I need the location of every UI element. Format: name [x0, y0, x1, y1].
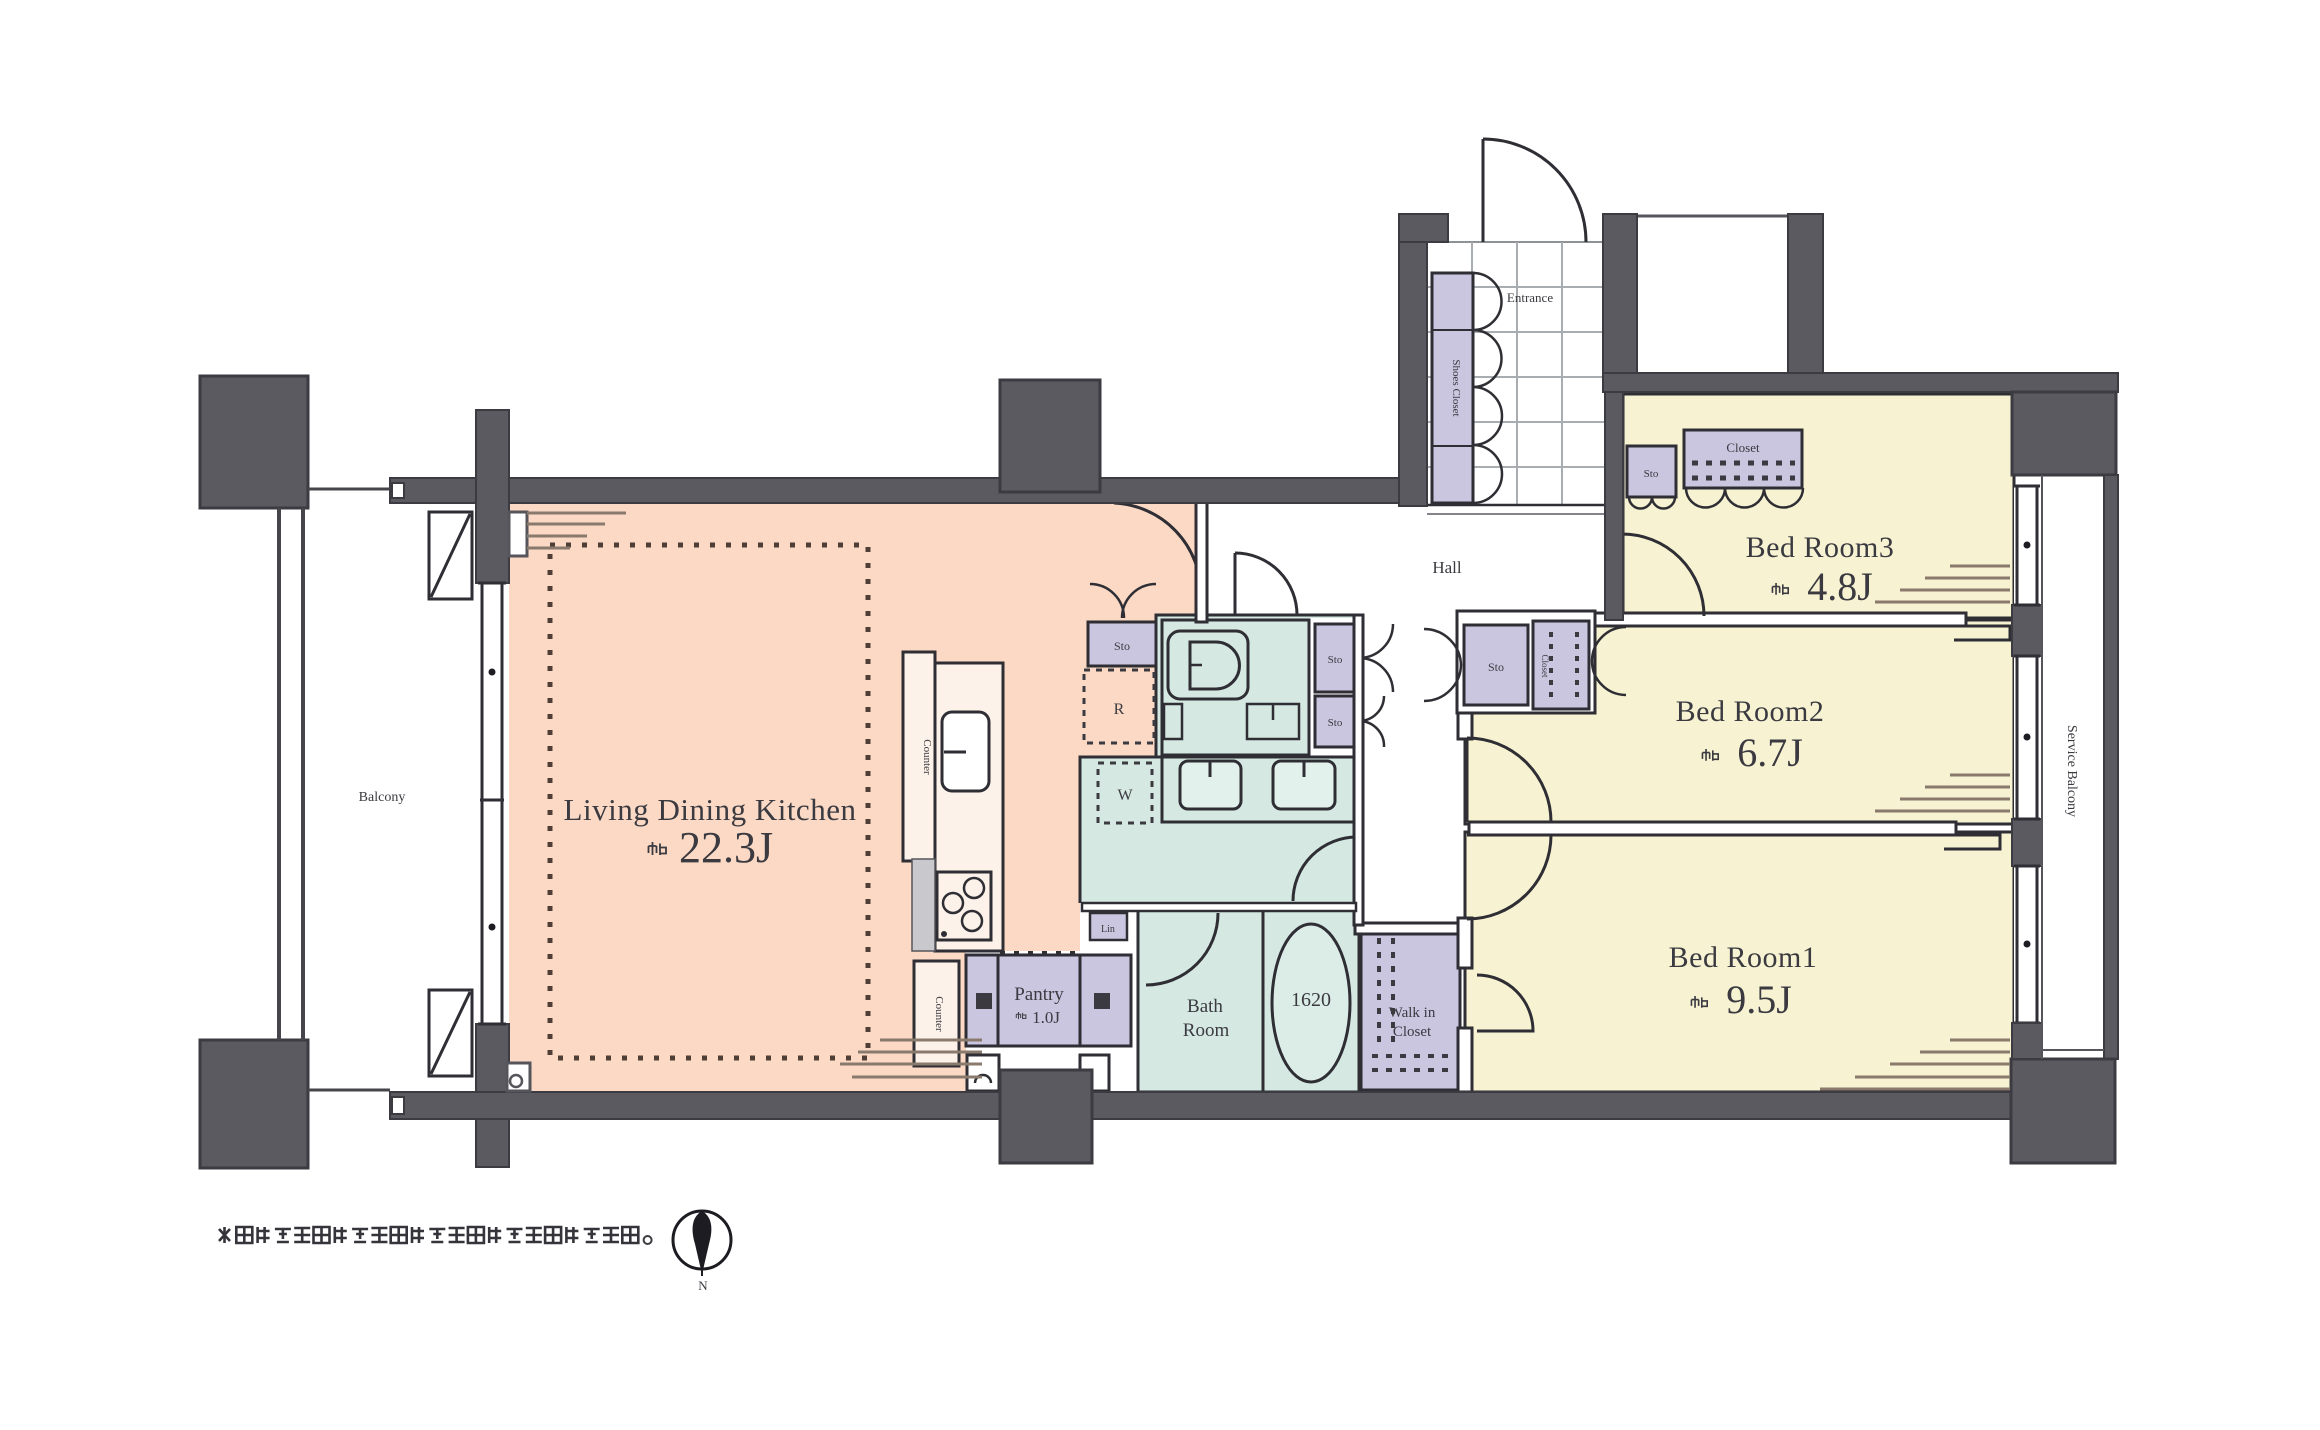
svg-text:Hall: Hall: [1432, 558, 1462, 577]
svg-text:N: N: [698, 1278, 708, 1293]
svg-text:Counter: Counter: [921, 739, 933, 775]
svg-text:Bath: Bath: [1187, 996, 1223, 1017]
svg-text:Bed Room3: Bed Room3: [1746, 531, 1895, 564]
svg-text:Service Balcony: Service Balcony: [2064, 725, 2079, 817]
svg-text:Bed Room1: Bed Room1: [1669, 941, 1818, 974]
svg-text:Bed Room2: Bed Room2: [1676, 695, 1825, 728]
svg-text:9.5J: 9.5J: [1726, 977, 1792, 1022]
svg-text:Counter: Counter: [933, 996, 945, 1032]
svg-text:Balcony: Balcony: [359, 790, 406, 805]
svg-text:Pantry: Pantry: [1014, 984, 1064, 1005]
svg-text:W: W: [1117, 787, 1133, 804]
svg-text:Sto: Sto: [1488, 660, 1504, 674]
svg-text:1620: 1620: [1291, 989, 1331, 1011]
svg-text:22.3J: 22.3J: [679, 823, 773, 872]
svg-text:Sto: Sto: [1328, 717, 1343, 729]
svg-text:Walk in: Walk in: [1389, 1005, 1436, 1021]
svg-text:Sto: Sto: [1328, 654, 1343, 666]
svg-text:Shoes Closet: Shoes Closet: [1450, 359, 1462, 416]
svg-text:Entrance: Entrance: [1507, 290, 1553, 305]
svg-text:1.0J: 1.0J: [1032, 1008, 1060, 1027]
svg-text:6.7J: 6.7J: [1737, 730, 1803, 775]
svg-text:R: R: [1114, 701, 1125, 718]
svg-text:Closet: Closet: [1540, 654, 1550, 678]
svg-text:Lin: Lin: [1101, 924, 1115, 935]
svg-text:Living Dining Kitchen: Living Dining Kitchen: [564, 792, 857, 827]
svg-text:4.8J: 4.8J: [1807, 564, 1873, 609]
svg-text:Sto: Sto: [1114, 639, 1130, 653]
svg-text:Room: Room: [1183, 1020, 1230, 1041]
svg-text:Closet: Closet: [1726, 440, 1760, 455]
svg-text:Closet: Closet: [1393, 1024, 1432, 1040]
svg-text:Sto: Sto: [1644, 468, 1659, 480]
